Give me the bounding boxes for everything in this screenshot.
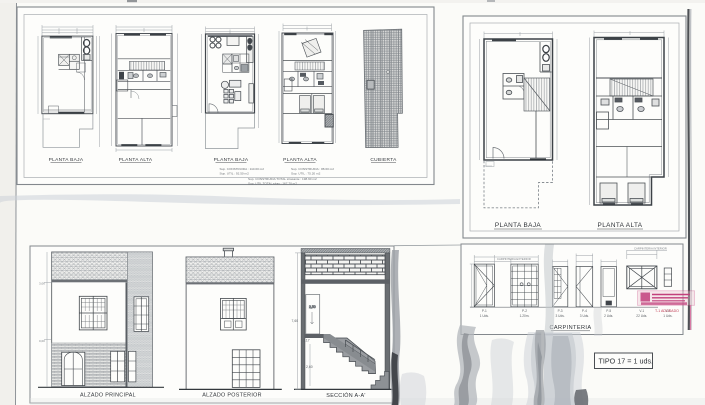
svg-text:7,60: 7,60 [292,319,299,323]
svg-text:P-5: P-5 [606,309,611,313]
svg-text:P-2: P-2 [522,309,527,313]
svg-text:CARPINTERIA EXTERIOR: CARPINTERIA EXTERIOR [497,257,531,261]
svg-text:3 Uds.: 3 Uds. [580,314,589,318]
svg-text:3,06: 3,06 [39,282,45,286]
svg-text:Sup. UTIL : 75.20 m2: Sup. UTIL : 75.20 m2 [291,171,321,175]
svg-text:1 Uds.: 1 Uds. [663,314,672,318]
svg-text:PLANTA ALTA: PLANTA ALTA [119,157,153,163]
svg-text:P-4: P-4 [582,309,587,313]
svg-text:TIPO 17 = 1 uds.: TIPO 17 = 1 uds. [599,357,654,366]
svg-text:PLANTA BAJA: PLANTA BAJA [49,157,84,163]
svg-text:Sup. UTIL TOTAL s/ras : 167.70: Sup. UTIL TOTAL s/ras : 167.70 m2 [248,181,297,185]
svg-text:PLANTA ALTA: PLANTA ALTA [283,157,317,163]
svg-text:PLANTA BAJA: PLANTA BAJA [495,222,542,229]
svg-text:Sup. CONSTRUIDA TOTAL s/rasant: Sup. CONSTRUIDA TOTAL s/rasante : 198.60… [248,177,317,181]
svg-text:3,17: 3,17 [303,339,310,343]
svg-text:2,50: 2,50 [309,305,316,309]
svg-text:ALZADO PRINCIPAL: ALZADO PRINCIPAL [80,393,136,399]
svg-text:V-1: V-1 [639,309,644,313]
svg-text:CUBIERTA: CUBIERTA [370,157,397,163]
svg-text:1 Uds.: 1 Uds. [480,314,489,318]
svg-text:P-3: P-3 [558,309,563,313]
svg-text:2 Uds.: 2 Uds. [604,314,613,318]
svg-text:PLANTA ALTA: PLANTA ALTA [598,222,643,229]
svg-text:PLANTA BAJA: PLANTA BAJA [214,157,249,163]
svg-text:CARPINTERIA: CARPINTERIA [549,325,591,331]
svg-text:T-1 ADOSADO: T-1 ADOSADO [655,309,679,313]
svg-text:22 Uds.: 22 Uds. [636,314,647,318]
svg-text:Sup. UTIL : 92.50 m2: Sup. UTIL : 92.50 m2 [220,171,250,175]
svg-text:CARPINTERIA INTERIOR: CARPINTERIA INTERIOR [634,246,667,250]
svg-text:2,60: 2,60 [306,365,313,369]
svg-text:P-1: P-1 [482,309,487,313]
svg-text:1.20m.: 1.20m. [520,314,530,318]
svg-text:3 Uds.: 3 Uds. [555,314,564,318]
svg-text:SECCIÓN A-A': SECCIÓN A-A' [326,392,365,399]
svg-text:ALZADO POSTERIOR: ALZADO POSTERIOR [202,393,262,399]
svg-text:0,00: 0,00 [39,339,45,343]
